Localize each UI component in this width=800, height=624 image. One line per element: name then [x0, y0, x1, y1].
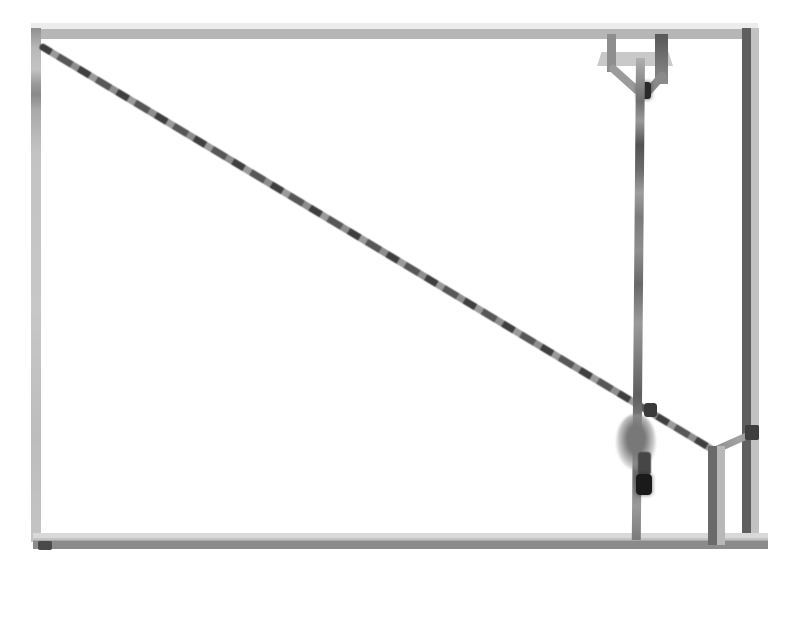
weight-dark-segment: [638, 452, 651, 475]
weight-bead: [636, 474, 652, 495]
frame-left-edge: [31, 28, 41, 542]
frame-right-edge: [742, 28, 759, 546]
support-post: [708, 446, 725, 545]
frame-top-edge: [31, 23, 758, 39]
diagonal-cable: [38, 42, 719, 455]
rope-crossing-knot: [644, 403, 657, 417]
frame-bottom-edge: [33, 533, 768, 549]
wall-anchor-spot: [745, 425, 759, 440]
frame-corner-smudge: [38, 541, 52, 550]
scanned-diagram-page: [0, 0, 800, 624]
